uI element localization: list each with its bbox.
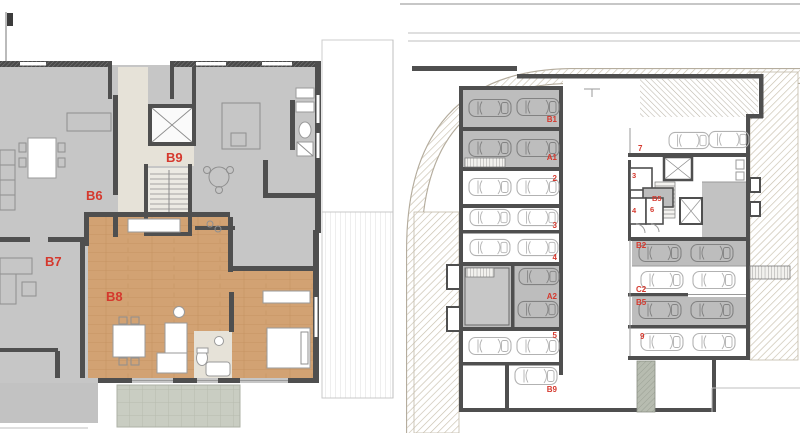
right-parking-plan: B1 A1 2 3 4 A2 5 B9 7 B2 C2 B5 9 3 B5 4 … <box>400 4 800 433</box>
unit-label-b9: B9 <box>166 150 183 165</box>
drive-aisle <box>563 78 628 412</box>
wall <box>188 164 192 236</box>
boundary-wall <box>412 66 517 71</box>
garage-top-wall <box>517 74 763 79</box>
stall-label-9: 9 <box>640 332 645 341</box>
light-well <box>447 307 460 331</box>
window <box>262 62 292 66</box>
garden-step-outline <box>712 388 800 412</box>
wall <box>759 74 764 118</box>
stall-label-b9: B9 <box>547 385 558 394</box>
left-floor-plan: B6 B7 B8 B9 <box>0 12 393 428</box>
stall-label-b5: B5 <box>636 298 647 307</box>
floor-plan-sheet: B6 B7 B8 B9 <box>0 0 800 433</box>
storeroom-label-6: 6 <box>650 205 654 214</box>
stall-label-b1: B1 <box>547 115 558 124</box>
window <box>196 62 226 66</box>
facade-wall <box>173 61 320 67</box>
stall-label-4: 4 <box>553 253 558 262</box>
stall-label-a1: A1 <box>547 153 558 162</box>
light-well <box>750 202 760 216</box>
stall-label-2: 2 <box>553 174 558 183</box>
unit-label-b8: B8 <box>106 289 123 304</box>
stair-icon <box>466 268 494 277</box>
decking-terrace <box>322 212 393 398</box>
wall <box>144 232 192 236</box>
light-well <box>447 265 460 289</box>
stall-label-b2: B2 <box>636 241 647 250</box>
facade-wall <box>0 61 110 67</box>
neighbour-wall-fragment <box>7 13 13 26</box>
ramp-strip <box>637 361 655 412</box>
plan-drawing: B6 B7 B8 B9 <box>0 0 800 433</box>
wall <box>170 61 174 99</box>
light-well <box>750 178 760 192</box>
storeroom-label-b5: B5 <box>652 194 662 203</box>
stall-label-c2: C2 <box>636 285 647 294</box>
wall <box>108 61 112 99</box>
storeroom-label-3: 3 <box>632 171 636 180</box>
lower-left-terrace <box>0 383 98 423</box>
stall-label-3: 3 <box>553 221 558 230</box>
stall-label-5: 5 <box>553 331 558 340</box>
garage-elevator-icon <box>664 157 692 180</box>
stall-label-a2: A2 <box>547 292 558 301</box>
unit-label-b7: B7 <box>45 254 62 269</box>
wall <box>746 114 763 119</box>
balcony <box>117 385 240 427</box>
elevator-icon <box>148 104 196 146</box>
upper-terrace <box>322 40 393 212</box>
external-stair-icon <box>750 266 790 279</box>
stair-icon <box>465 158 505 167</box>
stall-label-7: 7 <box>638 144 643 153</box>
shaft-icon <box>680 198 702 224</box>
ramp-hatch <box>640 79 758 117</box>
window <box>20 62 46 66</box>
unit-label-b6: B6 <box>86 188 103 203</box>
